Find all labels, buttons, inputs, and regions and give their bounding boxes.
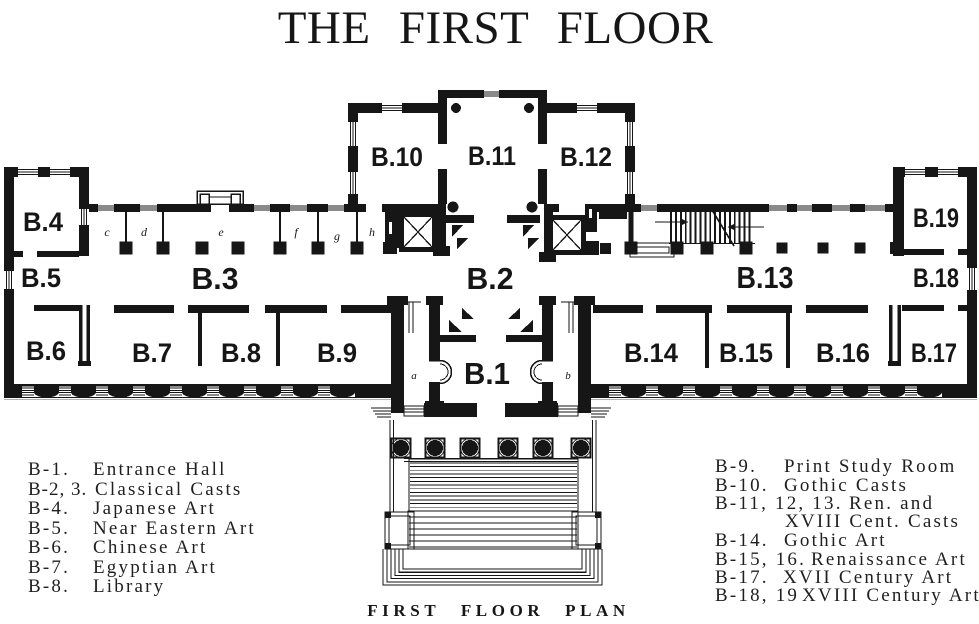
svg-text:b: b	[565, 370, 571, 382]
svg-text:f: f	[294, 225, 299, 239]
svg-text:e: e	[218, 225, 224, 239]
svg-text:g: g	[334, 229, 340, 243]
svg-text:B.16: B.16	[816, 338, 870, 368]
svg-text:d: d	[141, 225, 148, 239]
svg-text:B.19: B.19	[913, 203, 959, 233]
svg-text:B.4: B.4	[23, 207, 63, 237]
svg-text:h: h	[369, 225, 375, 239]
svg-text:B.15: B.15	[719, 338, 773, 368]
svg-text:B.10: B.10	[371, 142, 423, 172]
svg-text:B.8: B.8	[221, 338, 261, 368]
svg-text:B.1: B.1	[464, 356, 510, 391]
svg-text:B.13: B.13	[737, 260, 794, 295]
svg-text:B.5: B.5	[21, 263, 61, 293]
svg-text:B.14: B.14	[624, 338, 678, 368]
svg-text:B.6: B.6	[26, 336, 66, 366]
svg-text:B.11: B.11	[468, 141, 516, 171]
svg-text:B.9: B.9	[317, 338, 357, 368]
svg-text:c: c	[104, 225, 110, 239]
svg-text:a: a	[411, 370, 417, 382]
svg-text:B.2: B.2	[467, 261, 514, 296]
svg-text:B.3: B.3	[192, 261, 239, 296]
svg-text:B.12: B.12	[560, 142, 612, 172]
svg-text:B.7: B.7	[132, 338, 172, 368]
svg-text:B.17: B.17	[911, 338, 957, 368]
svg-text:B.18: B.18	[913, 263, 959, 293]
